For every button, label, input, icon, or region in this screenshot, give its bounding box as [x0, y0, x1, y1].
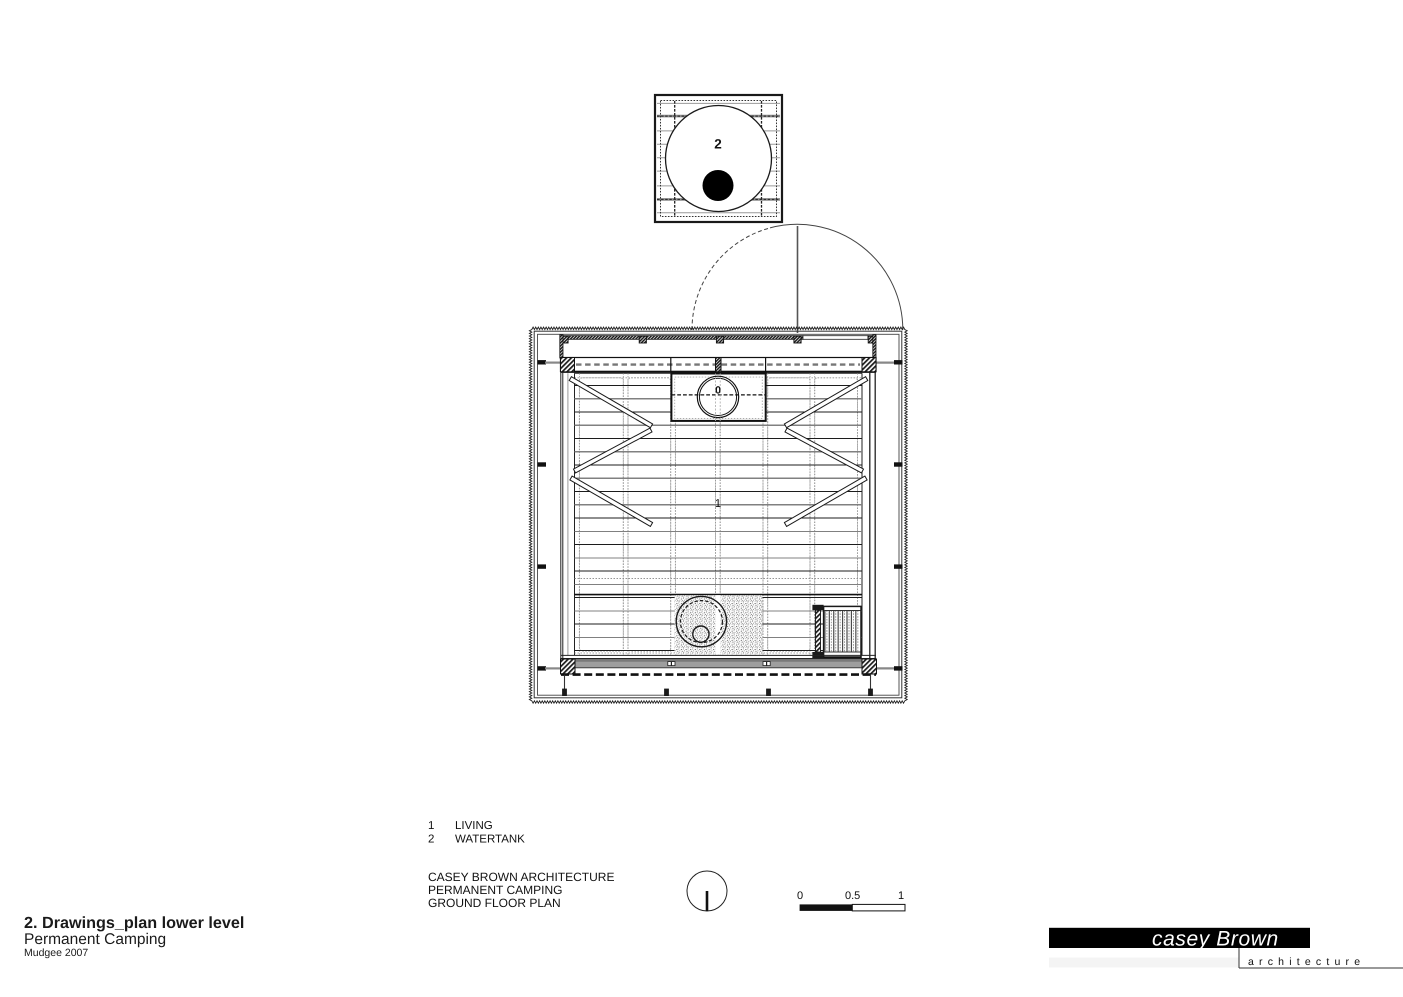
svg-text:Permanent Camping: Permanent Camping [24, 931, 166, 948]
svg-text:1: 1 [428, 820, 434, 832]
svg-text:2: 2 [428, 834, 434, 846]
svg-text:LIVING: LIVING [455, 820, 493, 832]
svg-text:2: 2 [714, 137, 722, 152]
svg-text:Mudgee 2007: Mudgee 2007 [24, 947, 88, 959]
svg-text:GROUND FLOOR PLAN: GROUND FLOOR PLAN [428, 896, 561, 910]
svg-text:0: 0 [715, 385, 721, 397]
svg-text:architecture: architecture [1248, 956, 1365, 968]
svg-text:0.5: 0.5 [845, 890, 860, 902]
svg-text:PERMANENT CAMPING: PERMANENT CAMPING [428, 883, 562, 897]
svg-text:WATERTANK: WATERTANK [455, 834, 525, 846]
svg-text:1: 1 [715, 498, 721, 510]
svg-text:1: 1 [898, 890, 904, 902]
svg-text:0: 0 [797, 890, 803, 902]
svg-text:casey Brown: casey Brown [1152, 928, 1279, 951]
svg-text:CASEY BROWN ARCHITECTURE: CASEY BROWN ARCHITECTURE [428, 870, 614, 884]
svg-text:2. Drawings_plan lower level: 2. Drawings_plan lower level [24, 914, 244, 932]
